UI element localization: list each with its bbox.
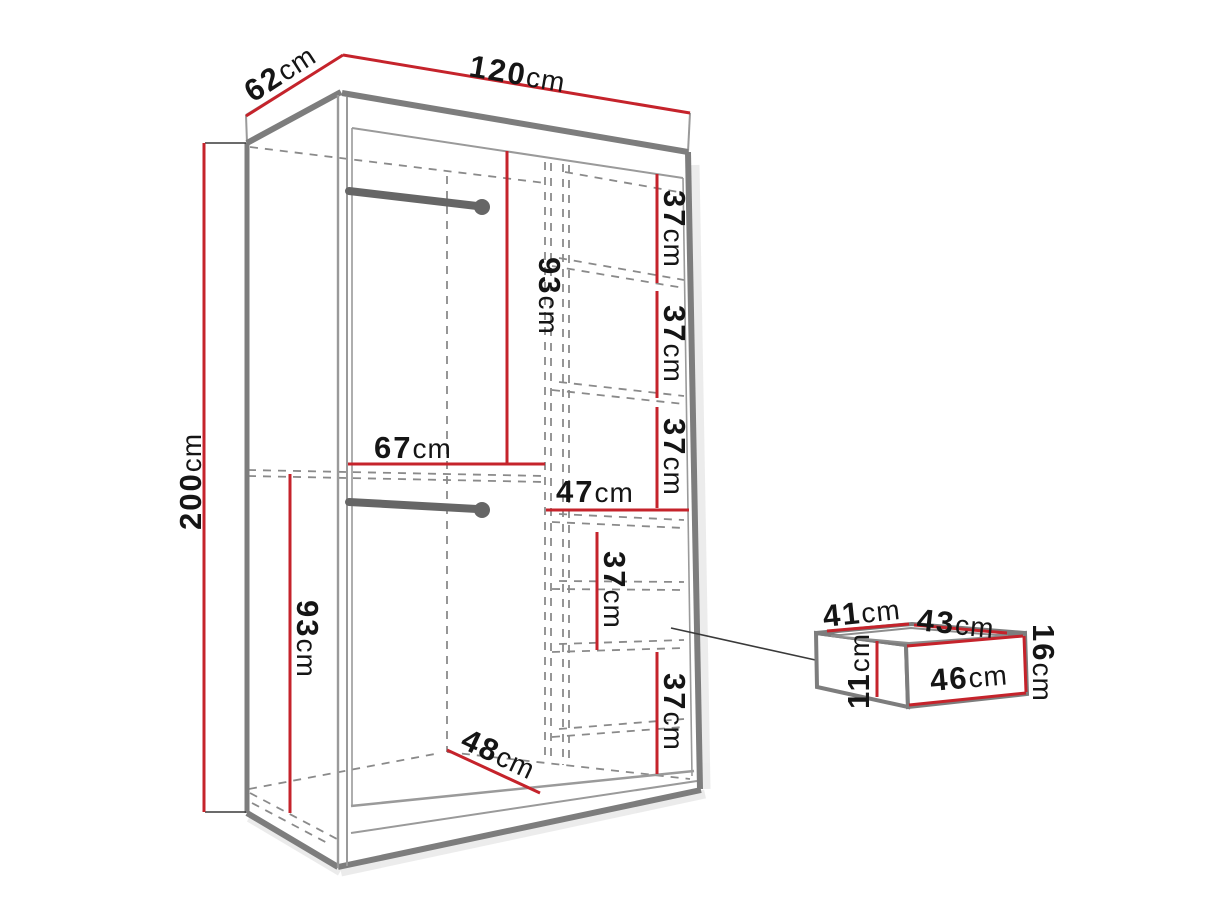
dim-shelf-gap-2-label: 37cm — [657, 305, 692, 383]
drawer-front-height-label: 16cm — [1026, 624, 1061, 702]
wardrobe-left-panel — [247, 93, 342, 868]
dim-line-drawer-front-height — [1024, 636, 1026, 692]
drawer-detail: 41cm 43cm 11cm 16cm 46cm — [816, 591, 1061, 709]
dim-shelf-gap-1-label: 37cm — [657, 190, 692, 268]
dim-upper-section-label: 93cm — [532, 257, 567, 335]
dim-shelf-gap-4-label: 37cm — [597, 551, 632, 629]
dim-right-width-label: 47cm — [556, 474, 634, 509]
wardrobe-dimension-diagram: 62cm 120cm 200cm 93cm 67cm 47cm 37cm 37c… — [0, 0, 1228, 921]
drawer-side-height-label: 11cm — [841, 633, 876, 709]
dim-lower-section-label: 93cm — [290, 600, 325, 678]
dim-shelf-gap-3-label: 37cm — [657, 418, 692, 496]
dim-left-width-label: 67cm — [374, 430, 452, 465]
wardrobe-drawing: 62cm 120cm 200cm 93cm 67cm 47cm 37cm 37c… — [173, 37, 706, 872]
diagram-canvas: 62cm 120cm 200cm 93cm 67cm 47cm 37cm 37c… — [0, 0, 1228, 921]
dim-shelf-gap-5-label: 37cm — [657, 673, 692, 751]
dim-height-label: 200cm — [173, 433, 208, 530]
